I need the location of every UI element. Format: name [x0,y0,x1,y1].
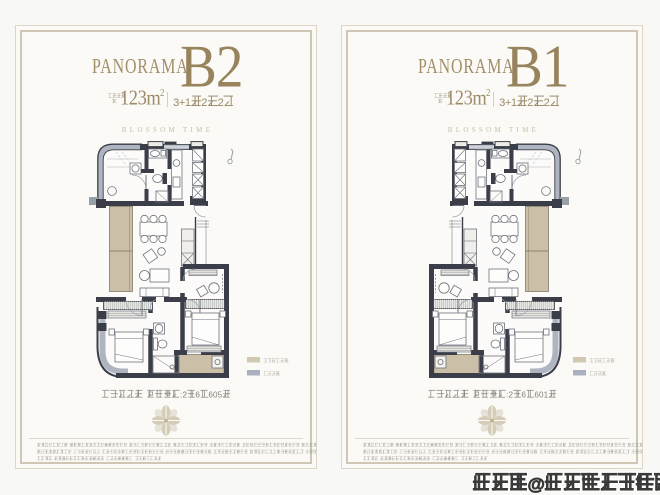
svg-text:2: 2 [508,391,513,400]
svg-text:PANORAMA: PANORAMA [92,55,189,79]
svg-text:B2: B2 [180,34,243,96]
svg-text:123m: 123m [446,88,487,110]
svg-text:2: 2 [486,89,491,100]
svg-text:6: 6 [521,391,526,400]
svg-text:5: 5 [218,391,223,400]
svg-text:1: 1 [511,97,517,109]
svg-text:1: 1 [185,97,191,109]
svg-text:123m: 123m [120,88,161,110]
svg-text:@: @ [528,474,545,494]
svg-text:2: 2 [201,97,207,109]
svg-text:PANORAMA: PANORAMA [418,55,515,79]
svg-text:2: 2 [218,97,224,109]
svg-text:B1: B1 [506,34,569,96]
svg-text:2: 2 [527,97,533,109]
svg-text:1: 1 [544,391,549,400]
svg-text:2: 2 [544,97,550,109]
svg-text:2: 2 [182,391,187,400]
svg-text:6: 6 [195,391,200,400]
svg-text:2: 2 [160,89,165,100]
